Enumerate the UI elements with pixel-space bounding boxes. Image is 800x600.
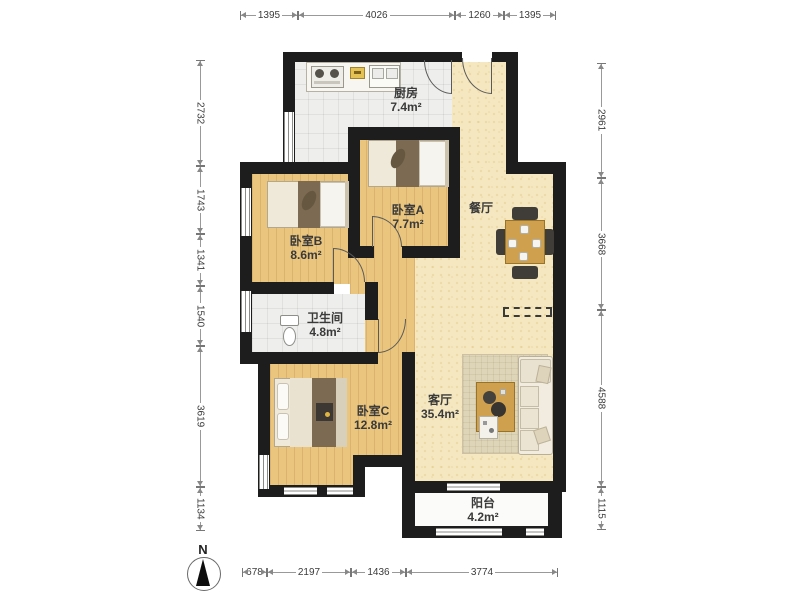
bed-c-tray-dot bbox=[325, 412, 330, 417]
tray-icon bbox=[479, 416, 498, 439]
sofa-cushion bbox=[520, 408, 539, 429]
room-label-living: 客厅 35.4m² bbox=[400, 393, 480, 421]
room-name: 厨房 bbox=[364, 86, 448, 100]
room-area: 7.4m² bbox=[364, 100, 448, 114]
room-label-balcony: 阳台 4.2m² bbox=[441, 496, 525, 524]
tray-mark bbox=[489, 428, 494, 433]
dim-bottom-3: 3774 bbox=[406, 565, 558, 579]
wall bbox=[506, 52, 518, 174]
room-area: 35.4m² bbox=[400, 407, 480, 421]
bathroom-window bbox=[241, 291, 251, 332]
room-label-dining: 餐厅 bbox=[449, 201, 513, 215]
bedroom-c-bottom-window bbox=[284, 487, 317, 495]
room-name: 卫生间 bbox=[283, 311, 367, 325]
bedroom-c-bottom-window-2 bbox=[327, 487, 353, 495]
balcony-window-2 bbox=[526, 528, 544, 536]
wall bbox=[240, 162, 360, 174]
bedroom-b-window bbox=[241, 188, 251, 236]
dim-left-0: 2732 bbox=[193, 60, 207, 166]
plate-icon bbox=[532, 239, 541, 248]
room-label-bedroom-b: 卧室B 8.6m² bbox=[264, 234, 348, 262]
bed-c-pillow bbox=[277, 413, 289, 440]
dim-left-3: 1540 bbox=[193, 286, 207, 346]
wall bbox=[448, 127, 460, 258]
bed-a-headboard bbox=[445, 140, 449, 187]
dim-right-0: 2961 bbox=[594, 63, 608, 178]
wall bbox=[553, 162, 566, 492]
plate-icon bbox=[520, 225, 529, 234]
room-area: 4.2m² bbox=[441, 510, 525, 524]
dim-bottom-1: 2197 bbox=[267, 565, 351, 579]
dim-left-5: 1134 bbox=[193, 487, 207, 531]
kitchen-window bbox=[284, 112, 294, 162]
dim-bottom-2: 1436 bbox=[351, 565, 406, 579]
floor-plan: 厨房 7.4m² 卧室A 7.7m² 卧室B 8.6m² 餐厅 卫生间 4.8m… bbox=[0, 0, 800, 600]
bed-c-sheet bbox=[290, 378, 312, 447]
room-label-bathroom: 卫生间 4.8m² bbox=[283, 311, 367, 339]
balcony-window bbox=[436, 528, 502, 536]
compass-needle-icon bbox=[196, 559, 210, 586]
dining-chair-icon bbox=[512, 266, 538, 279]
room-label-kitchen: 厨房 7.4m² bbox=[364, 86, 448, 114]
room-label-bedroom-a: 卧室A 7.7m² bbox=[366, 203, 450, 231]
dining-chair-icon bbox=[512, 207, 538, 220]
dim-bottom-0: 678 bbox=[242, 565, 267, 579]
stove-knobs bbox=[314, 81, 340, 84]
room-name: 阳台 bbox=[441, 496, 525, 510]
tray-mark bbox=[483, 421, 487, 425]
north-compass: N bbox=[180, 543, 226, 597]
dim-left-4: 3619 bbox=[193, 346, 207, 487]
room-name: 卧室A bbox=[366, 203, 450, 217]
wall bbox=[353, 455, 365, 497]
dim-top-0: 1395 bbox=[240, 8, 298, 22]
bed-c-pillow bbox=[277, 383, 289, 410]
dim-right-2: 4588 bbox=[594, 310, 608, 487]
plate-icon bbox=[508, 239, 517, 248]
dashed-beam bbox=[503, 307, 552, 317]
kitchen-floor-lower bbox=[293, 120, 350, 164]
exterior-notch bbox=[365, 467, 402, 497]
bed-a-mattress bbox=[419, 141, 446, 186]
dim-left-2: 1341 bbox=[193, 234, 207, 286]
appliance-slot bbox=[354, 71, 361, 74]
wall bbox=[348, 127, 460, 140]
room-name: 卧室B bbox=[264, 234, 348, 248]
north-label: N bbox=[180, 543, 226, 556]
room-area: 8.6m² bbox=[264, 248, 348, 262]
sink-basin bbox=[372, 68, 384, 79]
wall bbox=[360, 246, 374, 258]
room-area: 4.8m² bbox=[283, 325, 367, 339]
bed-b-mattress bbox=[320, 182, 346, 227]
decor-bowl-icon bbox=[491, 402, 506, 417]
burner-icon bbox=[315, 69, 324, 78]
decor-item bbox=[500, 389, 506, 395]
dim-right-3: 1115 bbox=[594, 487, 608, 530]
wall bbox=[402, 246, 460, 258]
dim-top-2: 1260 bbox=[455, 8, 504, 22]
bed-b-headboard bbox=[345, 181, 349, 228]
dim-top-1: 4026 bbox=[298, 8, 455, 22]
burner-icon bbox=[330, 69, 339, 78]
room-area: 7.7m² bbox=[366, 217, 450, 231]
dim-right-1: 3668 bbox=[594, 178, 608, 310]
wall bbox=[240, 282, 334, 294]
bedroom-c-side-window bbox=[259, 455, 269, 489]
dim-left-1: 1743 bbox=[193, 166, 207, 234]
room-name: 餐厅 bbox=[449, 201, 513, 215]
plate-icon bbox=[519, 252, 528, 261]
sofa-cushion bbox=[520, 386, 539, 407]
wall bbox=[348, 127, 360, 258]
dim-top-3: 1395 bbox=[504, 8, 556, 22]
room-name: 客厅 bbox=[400, 393, 480, 407]
sink-basin bbox=[386, 68, 398, 79]
balcony-sliding-door bbox=[447, 483, 500, 491]
